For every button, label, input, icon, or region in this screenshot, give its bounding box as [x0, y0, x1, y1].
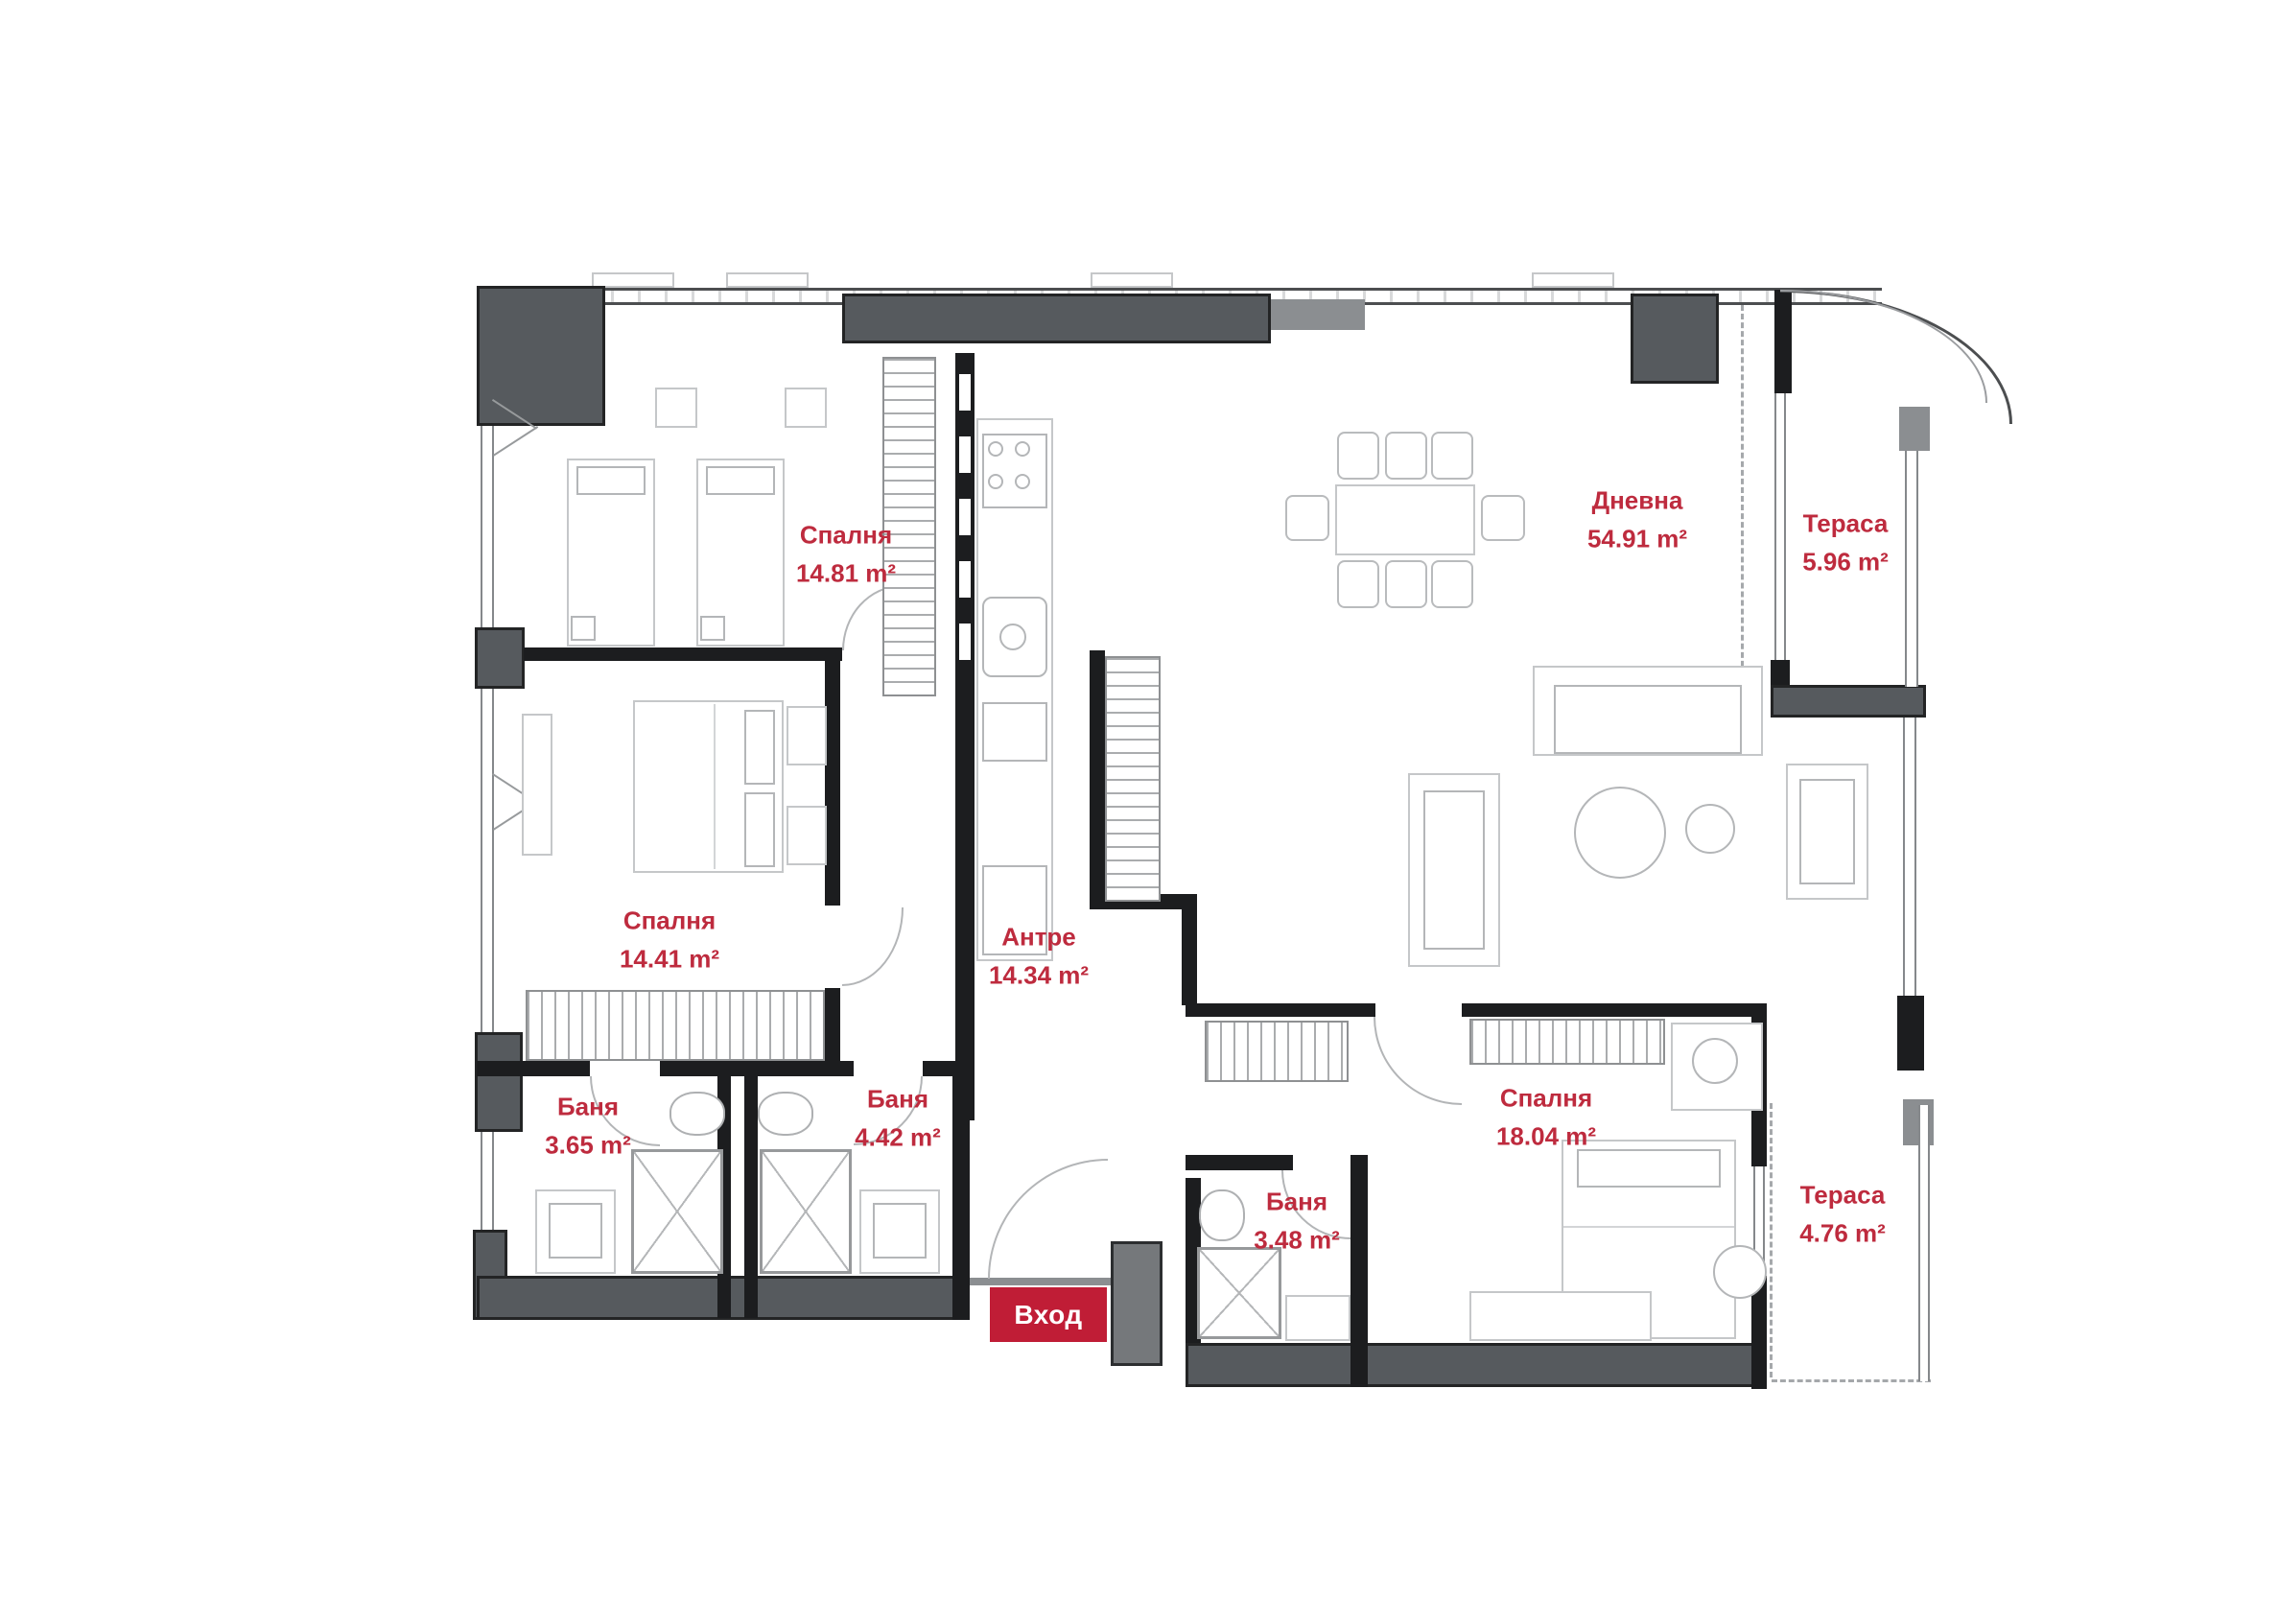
wardrobe-tall: [522, 714, 552, 856]
pillow: [706, 466, 775, 495]
blanket-fold: [700, 616, 725, 641]
window-opening-mark: [493, 426, 538, 457]
wall-block-top-right: [1631, 294, 1719, 384]
dining-chair: [1431, 560, 1473, 608]
wall-pier-left: [475, 627, 525, 689]
sink-drain: [999, 624, 1026, 650]
side-table: [1685, 804, 1735, 854]
window-terrace1-rail: [1905, 451, 1918, 687]
dining-chair: [1285, 495, 1329, 541]
room-name: Спалня: [620, 902, 719, 940]
terrace-curve-inner: [1780, 290, 1987, 403]
room-area: 4.42 m²: [855, 1118, 941, 1157]
room-label-terrace-1: Тераса 5.96 m²: [1802, 505, 1889, 582]
window-left-bath: [481, 1132, 494, 1230]
wall-corner-top-left: [477, 286, 605, 426]
nightstand: [787, 706, 827, 765]
wall-hall-living: [1090, 650, 1105, 906]
dining-chair: [1431, 432, 1473, 480]
burner: [988, 441, 1003, 457]
room-area: 14.81 m²: [796, 554, 896, 593]
window-sill: [1532, 272, 1614, 288]
window-sill: [726, 272, 809, 288]
nightstand: [787, 806, 827, 865]
wall-curve-pier: [1899, 407, 1930, 451]
room-name: Тераса: [1802, 505, 1889, 543]
room-area: 3.48 m²: [1254, 1221, 1340, 1259]
wall-living-east-pier: [1897, 996, 1924, 1071]
window-living-terrace1: [1774, 393, 1786, 660]
shaft-opening: [959, 374, 971, 411]
burner: [988, 474, 1003, 489]
dining-chair: [1385, 560, 1427, 608]
wall-bath-north: [477, 1061, 590, 1076]
wall-bath3-north: [1186, 1155, 1293, 1170]
dashed-terrace1-boundary: [1741, 305, 1744, 693]
pillow: [576, 466, 646, 495]
room-label-bedroom-2: Спалня 14.41 m²: [620, 902, 719, 979]
floor-plan: Спалня 14.81 m² Дневна 54.91 m² Тераса 5…: [0, 0, 2278, 1624]
shaft-opening: [959, 561, 971, 598]
dining-chair: [1481, 495, 1525, 541]
shower: [760, 1149, 852, 1274]
wall-entrance-column: [1111, 1241, 1162, 1366]
toilet: [669, 1092, 725, 1136]
room-label-bedroom-1: Спалня 14.81 m²: [796, 516, 896, 594]
coffee-table: [1574, 787, 1666, 879]
entrance-label: Вход: [1014, 1300, 1082, 1330]
room-name: Дневна: [1587, 482, 1687, 520]
dining-chair: [1385, 432, 1427, 480]
room-name: Баня: [545, 1088, 631, 1126]
room-name: Баня: [1254, 1183, 1340, 1221]
shaft-opening: [959, 436, 971, 473]
burner: [1015, 441, 1030, 457]
bench: [1469, 1291, 1652, 1341]
wall-bedroom1-south: [524, 647, 842, 661]
door-arc-bedroom3: [1374, 1017, 1462, 1105]
pillow: [744, 710, 775, 785]
hall-closet-shelves: [1105, 656, 1161, 902]
room-name: Антре: [989, 918, 1089, 956]
room-label-bathroom-2: Баня 4.42 m²: [855, 1080, 941, 1158]
door-arc-entrance: [988, 1159, 1108, 1279]
sofa-cushions: [1423, 790, 1485, 950]
nightstand: [655, 388, 697, 428]
blanket-line: [714, 704, 716, 869]
room-name: Баня: [855, 1080, 941, 1118]
room-area: 14.41 m²: [620, 940, 719, 978]
shower: [1197, 1247, 1281, 1339]
dashed-terrace2-boundary: [1770, 1103, 1773, 1377]
armchair-cushion: [1799, 779, 1855, 884]
room-area: 54.91 m²: [1587, 520, 1687, 558]
room-label-terrace-2: Тераса 4.76 m²: [1799, 1176, 1886, 1254]
room-area: 4.76 m²: [1799, 1214, 1886, 1253]
wall-bath3-east: [1350, 1155, 1368, 1387]
vestibule-wardrobe: [1205, 1021, 1349, 1082]
room-area: 5.96 m²: [1802, 543, 1889, 581]
room-name: Спалня: [796, 516, 896, 554]
dining-chair: [1337, 560, 1379, 608]
dining-table: [1335, 484, 1475, 555]
shower: [631, 1149, 723, 1274]
wall-bath-divider: [744, 1072, 758, 1318]
floor-lamp: [1713, 1245, 1767, 1299]
kitchen-cabinet: [982, 702, 1047, 762]
wall-vestibule-north: [1186, 1003, 1375, 1017]
window-sill: [1091, 272, 1173, 288]
window-terrace2-rail: [1918, 1105, 1930, 1381]
wall-bath-north: [923, 1061, 971, 1076]
washbasin-bowl: [873, 1203, 927, 1259]
room-name: Спалня: [1496, 1079, 1596, 1118]
wall-hall-step: [1182, 909, 1197, 1005]
room-area: 14.34 m²: [989, 956, 1089, 995]
washbasin: [1285, 1295, 1350, 1341]
stool: [1692, 1038, 1738, 1084]
room-label-living-room: Дневна 54.91 m²: [1587, 482, 1687, 559]
wall-bedroom3-north: [1462, 1003, 1767, 1017]
wall-beam-top: [842, 294, 1271, 343]
blanket-line: [1563, 1226, 1734, 1228]
wardrobe-hatched: [1469, 1019, 1665, 1065]
pillow: [1577, 1149, 1721, 1188]
wall-bedroom2-east: [825, 988, 840, 1065]
room-name: Тераса: [1799, 1176, 1886, 1214]
wall-pier-left: [475, 1032, 523, 1132]
room-area: 3.65 m²: [545, 1126, 631, 1165]
entrance-badge: Вход: [990, 1287, 1107, 1342]
shaft-opening: [959, 499, 971, 535]
sofa-cushions: [1554, 685, 1742, 754]
wardrobe-hatched: [526, 990, 825, 1061]
room-label-bathroom-1: Баня 3.65 m²: [545, 1088, 631, 1165]
window-left-bedroom2: [481, 689, 494, 1032]
dining-chair: [1337, 432, 1379, 480]
room-label-bedroom-3: Спалня 18.04 m²: [1496, 1079, 1596, 1157]
room-label-hallway: Антре 14.34 m²: [989, 918, 1089, 996]
room-label-bathroom-3: Баня 3.48 m²: [1254, 1183, 1340, 1260]
wall-corridor-ledge: [970, 1278, 1114, 1285]
room-area: 18.04 m²: [1496, 1118, 1596, 1156]
toilet: [1199, 1189, 1245, 1241]
wall-bedroom2-east: [825, 661, 840, 906]
burner: [1015, 474, 1030, 489]
blanket-fold: [571, 616, 596, 641]
pillow: [744, 792, 775, 867]
door-arc-bedroom2: [842, 907, 904, 986]
dashed-terrace2-edge: [1772, 1379, 1931, 1382]
window-left-bedroom1: [481, 426, 494, 629]
nightstand: [785, 388, 827, 428]
wall-bottom-bedroom3: [1186, 1343, 1767, 1387]
window-living-east: [1903, 718, 1916, 996]
washbasin-bowl: [549, 1203, 602, 1259]
shaft-opening: [959, 624, 971, 660]
wall-beam-extension: [1271, 299, 1365, 330]
toilet: [758, 1092, 813, 1136]
wall-terrace1-ledge: [1771, 685, 1926, 718]
